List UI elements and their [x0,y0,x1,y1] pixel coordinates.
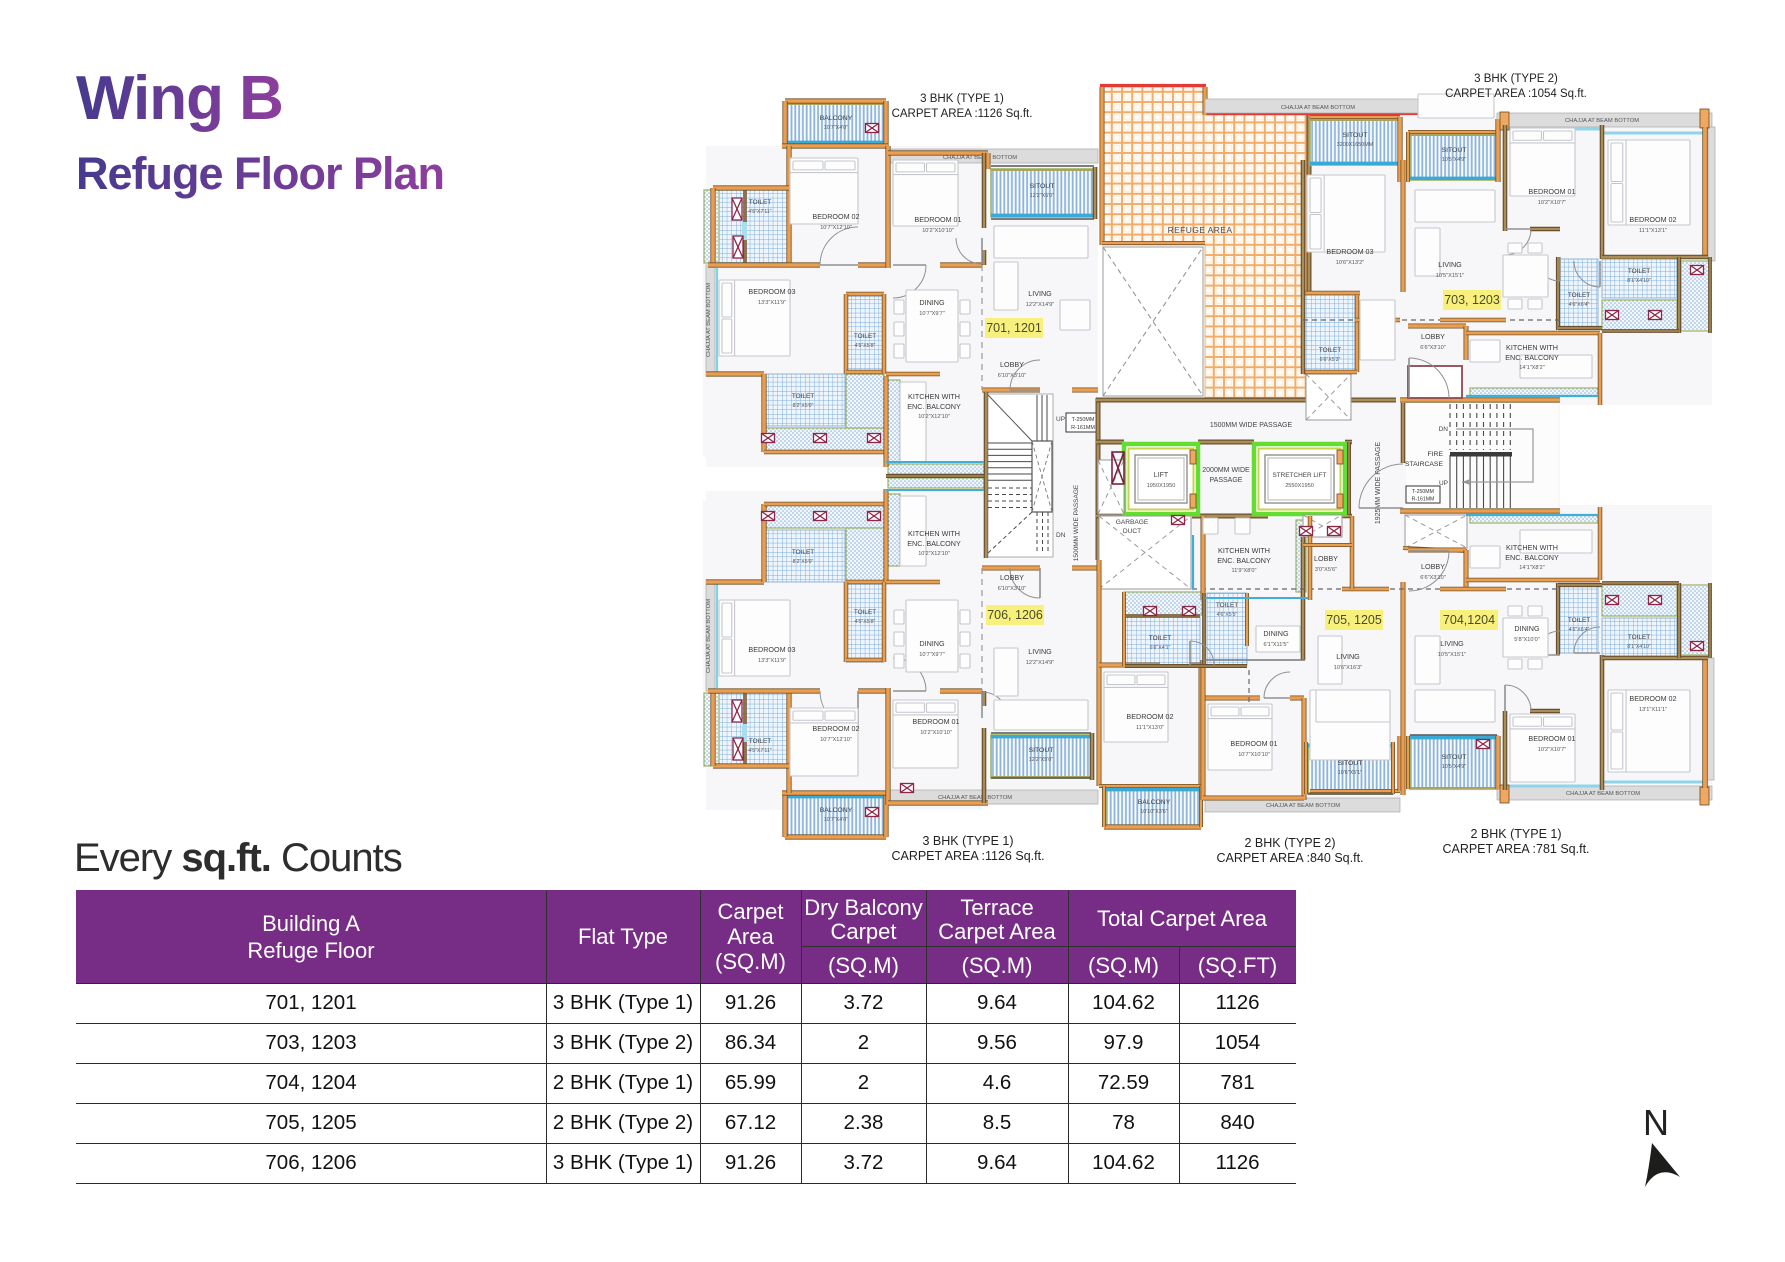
svg-text:TOILET: TOILET [749,199,771,206]
svg-text:LOBBY: LOBBY [1314,554,1338,563]
svg-text:1500MM WIDE PASSAGE: 1500MM WIDE PASSAGE [1073,484,1080,561]
svg-text:LOBBY: LOBBY [1421,332,1445,341]
svg-text:6'6"X5'3": 6'6"X5'3" [1320,357,1341,363]
svg-text:KITCHEN WITH: KITCHEN WITH [908,529,960,538]
svg-text:11'1"X13'1": 11'1"X13'1" [1639,228,1667,234]
svg-text:KITCHEN WITH: KITCHEN WITH [908,392,960,401]
svg-text:10'5"X4'9": 10'5"X4'9" [1442,764,1467,770]
svg-text:2000MM WIDE: 2000MM WIDE [1202,467,1250,474]
svg-text:PASSAGE: PASSAGE [1210,477,1243,484]
svg-text:SITOUT: SITOUT [1442,754,1467,761]
svg-text:3'0"X5'6": 3'0"X5'6" [1315,567,1337,573]
svg-text:4'5"X7'11": 4'5"X7'11" [748,209,771,215]
svg-text:6'10"X3'10": 6'10"X3'10" [998,586,1027,592]
svg-text:10'6"X16'3": 10'6"X16'3" [1334,665,1363,671]
svg-text:LIFT: LIFT [1154,472,1169,479]
svg-text:BEDROOM 02: BEDROOM 02 [812,212,859,221]
svg-text:8'2"X5'0": 8'2"X5'0" [793,403,814,409]
svg-text:STRETCHER LIFT: STRETCHER LIFT [1273,472,1327,479]
svg-text:CARPET AREA :1054 Sq.ft.: CARPET AREA :1054 Sq.ft. [1445,88,1587,100]
svg-text:BEDROOM 01: BEDROOM 01 [912,717,959,726]
svg-text:BEDROOM 03: BEDROOM 03 [748,645,795,654]
svg-text:TOILET: TOILET [792,549,814,556]
svg-text:TOILET: TOILET [1628,634,1650,641]
svg-text:4'5"X5'8": 4'5"X5'8" [855,343,876,349]
svg-text:10'2"X12'10": 10'2"X12'10" [918,551,950,557]
svg-text:10'7"X9'7": 10'7"X9'7" [919,311,944,317]
svg-text:10'5"X15'1": 10'5"X15'1" [1436,273,1465,279]
svg-text:LIVING: LIVING [1028,647,1052,656]
svg-text:UP: UP [1056,416,1065,423]
svg-text:2 BHK (TYPE 1): 2 BHK (TYPE 1) [1471,827,1562,841]
svg-text:DN: DN [1056,532,1066,539]
svg-text:6'6"X3'10": 6'6"X3'10" [1420,345,1445,351]
svg-text:BALCONY: BALCONY [820,807,853,814]
svg-text:1925MM WIDE PASSAGE: 1925MM WIDE PASSAGE [1375,442,1382,525]
svg-text:11'9"X8'0": 11'9"X8'0" [1232,568,1257,574]
svg-text:12'2"X5'0": 12'2"X5'0" [1029,757,1054,763]
svg-text:DUCT: DUCT [1123,528,1141,535]
svg-text:4'6"X6'4": 4'6"X6'4" [1569,627,1590,633]
svg-text:GARBAGE: GARBAGE [1116,519,1149,526]
svg-text:10'7"X4'0": 10'7"X4'0" [824,125,849,131]
svg-text:706, 1206: 706, 1206 [987,608,1043,622]
svg-text:CARPET AREA :1126 Sq.ft.: CARPET AREA :1126 Sq.ft. [892,108,1033,120]
svg-text:CHAJJA AT BEAM BOTTOM: CHAJJA AT BEAM BOTTOM [706,599,712,673]
svg-text:ENC. BALCONY: ENC. BALCONY [907,402,961,411]
svg-text:4'6"X5'5": 4'6"X5'5" [1217,612,1238,618]
svg-text:10'2"X10'10": 10'2"X10'10" [920,730,952,736]
svg-text:DINING: DINING [919,298,945,307]
svg-text:TOILET: TOILET [1149,635,1171,642]
svg-text:CHAJJA AT BEAM BOTTOM: CHAJJA AT BEAM BOTTOM [1565,118,1639,124]
svg-text:CHAJJA AT BEAM BOTTOM: CHAJJA AT BEAM BOTTOM [938,795,1012,801]
svg-text:3200X1650MM: 3200X1650MM [1337,142,1374,148]
svg-text:ENC. BALCONY: ENC. BALCONY [1505,353,1559,362]
svg-text:6'6"X3'10": 6'6"X3'10" [1420,575,1445,581]
svg-text:4'5"X7'11": 4'5"X7'11" [748,748,771,754]
svg-text:CARPET AREA :781 Sq.ft.: CARPET AREA :781 Sq.ft. [1442,842,1589,856]
svg-text:3 BHK (TYPE 2): 3 BHK (TYPE 2) [1474,73,1558,85]
svg-text:TOILET: TOILET [792,393,814,400]
svg-text:1500MM WIDE PASSAGE: 1500MM WIDE PASSAGE [1210,422,1293,429]
svg-text:10'7"X9'7": 10'7"X9'7" [919,652,944,658]
svg-text:BEDROOM 01: BEDROOM 01 [914,215,961,224]
svg-text:5'8"X10'0": 5'8"X10'0" [1514,637,1539,643]
svg-text:12'2"X14'9": 12'2"X14'9" [1026,302,1055,308]
svg-text:TOILET: TOILET [1319,347,1341,354]
svg-text:ENC. BALCONY: ENC. BALCONY [1217,556,1271,565]
svg-text:14'1"X8'2": 14'1"X8'2" [1519,565,1544,571]
svg-text:BEDROOM 01: BEDROOM 01 [1230,739,1277,748]
svg-text:TOILET: TOILET [1568,617,1590,624]
svg-text:BEDROOM 01: BEDROOM 01 [1528,187,1575,196]
svg-text:703, 1203: 703, 1203 [1444,293,1500,307]
svg-text:SITOUT: SITOUT [1343,132,1368,139]
svg-text:13'3"X11'9": 13'3"X11'9" [758,658,786,664]
svg-text:4'5"X5'8": 4'5"X5'8" [855,619,876,625]
svg-text:TOILET: TOILET [749,738,771,745]
svg-text:R-161MM: R-161MM [1071,425,1095,431]
svg-text:10'2"X12'10": 10'2"X12'10" [918,414,950,420]
svg-text:LOBBY: LOBBY [1421,562,1445,571]
svg-text:3 BHK (TYPE 1): 3 BHK (TYPE 1) [923,834,1014,848]
svg-text:4'6"X6'4": 4'6"X6'4" [1569,302,1590,308]
svg-text:BALCONY: BALCONY [1138,799,1171,806]
svg-text:BEDROOM 02: BEDROOM 02 [1629,215,1676,224]
svg-text:SITOUT: SITOUT [1442,147,1467,154]
svg-text:SITOUT: SITOUT [1029,747,1054,754]
svg-text:14'1"X8'2": 14'1"X8'2" [1519,365,1544,371]
svg-text:10'2"X10'7": 10'2"X10'7" [1538,747,1567,753]
svg-text:TOILET: TOILET [1216,602,1238,609]
svg-text:DINING: DINING [919,639,945,648]
svg-text:11'1"X13'0": 11'1"X13'0" [1136,725,1164,731]
svg-text:SITOUT: SITOUT [1338,760,1363,767]
svg-text:701, 1201: 701, 1201 [986,321,1042,335]
svg-text:LOBBY: LOBBY [1000,573,1024,582]
svg-text:STAIRCASE: STAIRCASE [1405,461,1443,468]
svg-text:LIVING: LIVING [1028,289,1052,298]
svg-text:10'5"X15'1": 10'5"X15'1" [1438,652,1467,658]
svg-text:TOILET: TOILET [1628,268,1650,275]
svg-text:DINING: DINING [1514,624,1540,633]
svg-text:KITCHEN WITH: KITCHEN WITH [1506,543,1558,552]
svg-text:ENC. BALCONY: ENC. BALCONY [907,539,961,548]
svg-text:CHAJJA AT BEAM BOTTOM: CHAJJA AT BEAM BOTTOM [706,283,712,357]
svg-text:704,1204: 704,1204 [1443,613,1495,627]
svg-text:CHAJJA AT BEAM BOTTOM: CHAJJA AT BEAM BOTTOM [1281,105,1355,111]
svg-text:BEDROOM 03: BEDROOM 03 [1326,247,1373,256]
svg-text:6'10"X3'10": 6'10"X3'10" [998,373,1027,379]
svg-text:LIVING: LIVING [1438,260,1462,269]
svg-text:TOILET: TOILET [854,609,876,616]
svg-text:12'2"X14'9": 12'2"X14'9" [1026,660,1055,666]
svg-text:2550X1950: 2550X1950 [1285,483,1314,489]
svg-text:TOILET: TOILET [854,333,876,340]
svg-text:FIRE: FIRE [1428,451,1444,458]
svg-text:CARPET AREA :840 Sq.ft.: CARPET AREA :840 Sq.ft. [1216,851,1363,865]
svg-text:LIVING: LIVING [1440,639,1464,648]
svg-text:10'7"X12'10": 10'7"X12'10" [820,225,852,231]
svg-text:BEDROOM 02: BEDROOM 02 [1629,694,1676,703]
svg-text:TOILET: TOILET [1568,292,1590,299]
svg-text:T-250MM: T-250MM [1412,489,1434,495]
svg-text:8'1"X4'10": 8'1"X4'10" [1627,644,1651,650]
svg-text:BEDROOM 02: BEDROOM 02 [1126,712,1173,721]
svg-text:10'7"X4'0": 10'7"X4'0" [824,817,849,823]
svg-text:10'6"X13'2": 10'6"X13'2" [1336,260,1365,266]
svg-text:8'2"X5'0": 8'2"X5'0" [793,559,814,565]
svg-text:1950X1950: 1950X1950 [1147,483,1176,489]
svg-text:10'5"X4'9": 10'5"X4'9" [1442,157,1467,163]
svg-text:3 BHK (TYPE 1): 3 BHK (TYPE 1) [920,93,1004,105]
svg-text:10'6"X5'1": 10'6"X5'1" [1338,770,1363,776]
svg-text:10'7"X12'10": 10'7"X12'10" [820,737,852,743]
svg-text:10'2"X10'10": 10'2"X10'10" [922,228,954,234]
svg-text:705, 1205: 705, 1205 [1326,613,1382,627]
svg-text:6'6"X4'1": 6'6"X4'1" [1150,645,1171,651]
svg-text:ENC. BALCONY: ENC. BALCONY [1505,553,1559,562]
svg-text:10'7"X10'10": 10'7"X10'10" [1238,752,1270,758]
svg-text:REFUGE AREA: REFUGE AREA [1168,225,1233,235]
svg-text:BEDROOM 02: BEDROOM 02 [812,724,859,733]
svg-text:LOBBY: LOBBY [1000,360,1024,369]
svg-text:T-250MM: T-250MM [1072,417,1095,423]
svg-text:DN: DN [1439,426,1449,433]
svg-text:KITCHEN WITH: KITCHEN WITH [1218,546,1270,555]
svg-text:DINING: DINING [1263,629,1289,638]
svg-text:KITCHEN WITH: KITCHEN WITH [1506,343,1558,352]
svg-text:CHAJJA AT BEAM BOTTOM: CHAJJA AT BEAM BOTTOM [1566,791,1640,797]
svg-text:12'2"X5'0": 12'2"X5'0" [1030,193,1055,199]
svg-text:LIVING: LIVING [1336,652,1360,661]
svg-text:10'2"X10'7": 10'2"X10'7" [1538,200,1567,206]
svg-text:13'3"X11'9": 13'3"X11'9" [758,300,786,306]
svg-text:6'1"X11'5": 6'1"X11'5" [1264,642,1289,648]
svg-text:2 BHK (TYPE 2): 2 BHK (TYPE 2) [1245,836,1336,850]
svg-text:BALCONY: BALCONY [820,115,853,122]
svg-text:CARPET AREA :1126 Sq.ft.: CARPET AREA :1126 Sq.ft. [891,849,1044,863]
svg-text:R-161MM: R-161MM [1412,497,1435,503]
svg-text:13'1"X11'1": 13'1"X11'1" [1639,707,1667,713]
svg-text:CHAJJA AT BEAM BOTTOM: CHAJJA AT BEAM BOTTOM [1266,803,1340,809]
svg-text:SITOUT: SITOUT [1030,183,1055,190]
svg-text:BEDROOM 03: BEDROOM 03 [748,287,795,296]
svg-text:BEDROOM 01: BEDROOM 01 [1528,734,1575,743]
svg-text:10'10"X3'6": 10'10"X3'6" [1140,809,1168,815]
svg-text:8'1"X4'10": 8'1"X4'10" [1627,278,1651,284]
